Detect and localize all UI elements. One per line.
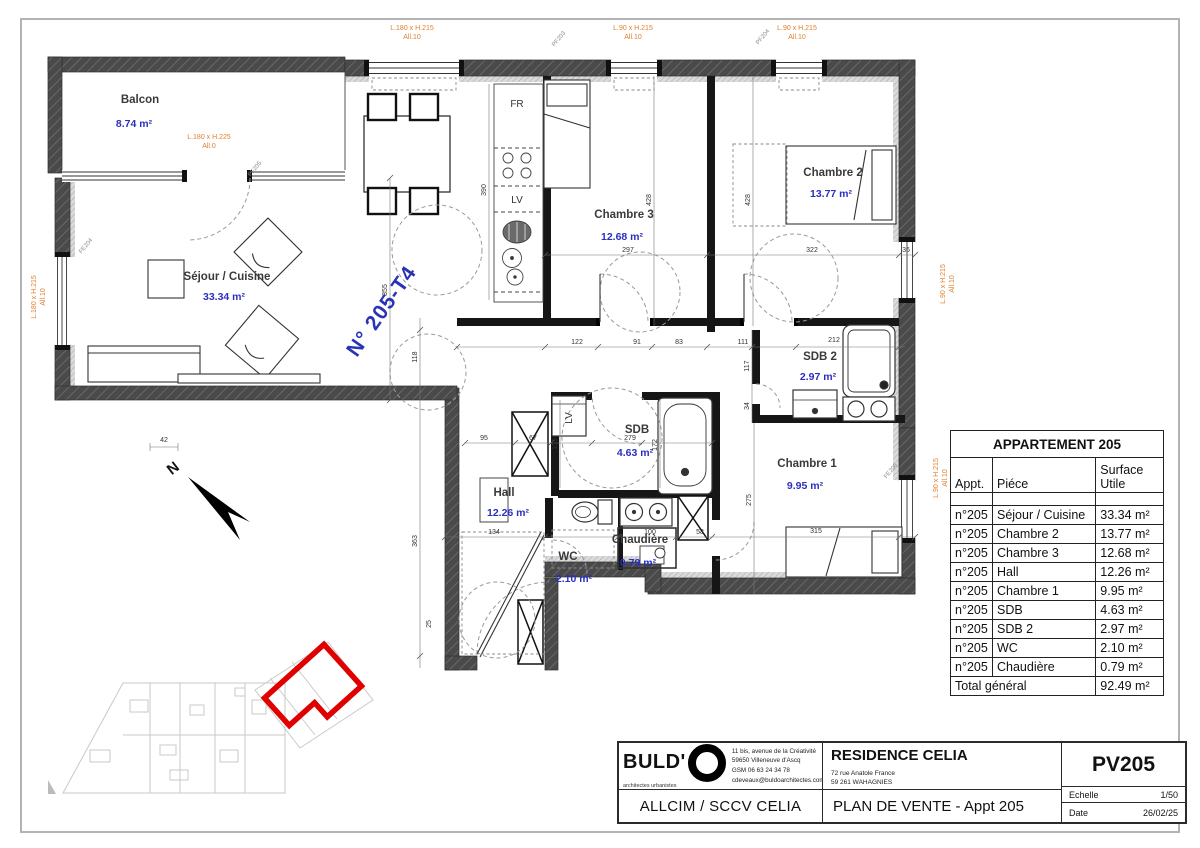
dim-text: 100 (644, 529, 656, 536)
dim-text: 58 (696, 529, 704, 536)
dining-table-icon (364, 116, 450, 192)
title-block: BULD' architectes urbanistes 11 bis, ave… (617, 741, 1187, 824)
dim-text: 159 (552, 438, 559, 450)
room-area-balcon: 8.74 m² (116, 118, 153, 130)
address-line: cdeveaux@buldoarchitectes.com (732, 776, 823, 786)
brand-subtitle: architectes urbanistes (623, 783, 726, 789)
cell-appt: n°205 (951, 601, 993, 620)
cell-appt: n°205 (951, 639, 993, 658)
cell-surface: 0.79 m² (1096, 658, 1164, 677)
room-area-chambre3: 12.68 m² (601, 231, 644, 243)
window-tag: PF204 (755, 28, 771, 46)
keyplan-marker (48, 780, 56, 794)
bed-icon (786, 527, 902, 577)
room-label-sejour: Séjour / Cuisine (184, 271, 271, 283)
room-label-chambre1: Chambre 1 (777, 458, 837, 470)
surface-table: APPARTEMENT 205 Appt. Piéce Surface Util… (950, 430, 1164, 696)
cell-appt: n°205 (951, 525, 993, 544)
window-size-label: L.90 x H.215 (613, 25, 653, 32)
room-label-chambre2: Chambre 2 (803, 167, 862, 179)
project-name: RESIDENCE CELIA (831, 747, 1053, 764)
room-area-hall: 12.26 m² (487, 507, 530, 519)
table-total-row: Total général 92.49 m² (951, 677, 1164, 696)
table-title: APPARTEMENT 205 (951, 431, 1164, 458)
bathtub-icon (658, 398, 712, 494)
table-row: n°205 Chambre 3 12.68 m² (951, 544, 1164, 563)
dim-text: 122 (571, 339, 583, 346)
laundry-label: LV (564, 412, 575, 424)
table-spacer-row (951, 493, 1164, 506)
dim-text: 36 (902, 247, 910, 254)
dim-text: 95 (480, 435, 488, 442)
dim-text: 117 (744, 360, 751, 371)
table-row: n°205 SDB 2 2.97 m² (951, 620, 1164, 639)
cell-piece: Chaudière (992, 658, 1095, 677)
dim-text: 322 (806, 247, 818, 254)
room-area-sdb2: 2.97 m² (800, 371, 837, 383)
room-label-chaudiere: Chaudière (612, 534, 668, 546)
cell-surface: 4.63 m² (1096, 601, 1164, 620)
project-address: 72 rue Anatole France 59 261 WAHAGNIES (831, 769, 1053, 787)
project-address-line: 72 rue Anatole France (831, 769, 1053, 778)
bed-icon (786, 146, 896, 224)
table-row: n°205 Chambre 2 13.77 m² (951, 525, 1164, 544)
coffee-table-icon (148, 260, 184, 298)
window-sill-label: All.10 (949, 275, 956, 293)
room-label-hall: Hall (493, 487, 514, 499)
dim-text: 297 (622, 247, 634, 254)
cell-appt: n°205 (951, 658, 993, 677)
wardrobe-dashed (733, 144, 787, 226)
dim-text: 34 (744, 402, 751, 410)
room-area-wc: 2.10 m² (556, 573, 593, 585)
brand-name: BULD' (623, 751, 686, 774)
col-header-piece: Piéce (992, 458, 1095, 493)
north-arrow: N (164, 458, 250, 540)
address-line: GSM 06 63 24 34 78 (732, 766, 823, 776)
table-row: n°205 Chaudière 0.79 m² (951, 658, 1164, 677)
window-sill-label: All.0 (202, 143, 216, 150)
scale-row: Echelle 1/50 (1062, 787, 1185, 803)
cell-surface: 12.68 m² (1096, 544, 1164, 563)
window-sill-label: All.10 (624, 34, 642, 41)
window-size-label: L.180 x H.225 (187, 134, 231, 141)
window-sill-label: All.10 (788, 34, 806, 41)
unit-number-label: N° 205-T4 (342, 262, 421, 361)
table-row: n°205 Séjour / Cuisine 33.34 m² (951, 506, 1164, 525)
bed-icon (544, 80, 590, 188)
kitchen-unit (494, 84, 543, 302)
window-sill-label: All.10 (40, 288, 47, 306)
cell-piece: SDB (992, 601, 1095, 620)
room-label-balcon: Balcon (121, 94, 159, 106)
dim-text: 111 (738, 339, 749, 346)
double-basin-icon (620, 498, 672, 526)
shower-icon (843, 325, 895, 397)
window-tag: PF203 (551, 30, 567, 48)
cell-appt: n°205 (951, 582, 993, 601)
cell-piece: Chambre 1 (992, 582, 1095, 601)
window-size-label: L.180 x H.215 (31, 275, 38, 319)
cell-surface: 12.26 m² (1096, 563, 1164, 582)
room-label-chambre3: Chambre 3 (594, 209, 653, 221)
window-tag: FE204 (78, 237, 94, 255)
dim-text: 428 (646, 194, 653, 206)
cell-appt: n°205 (951, 506, 993, 525)
room-area-sejour: 33.34 m² (203, 291, 246, 303)
project-block: RESIDENCE CELIA 72 rue Anatole France 59… (823, 743, 1062, 790)
plan-de-vente-sheet: { "plan": { "unit_label": "N° 205-T4", "… (0, 0, 1200, 848)
window-size-label: L.180 x H.215 (390, 25, 434, 32)
highlighted-unit-outline (265, 644, 362, 739)
room-label-sdb2: SDB 2 (803, 351, 837, 363)
address-line: 59650 Villeneuve d'Ascq (732, 756, 823, 766)
cell-surface: 9.95 m² (1096, 582, 1164, 601)
armchair-icon (225, 305, 298, 378)
drawing-reference: PV205 (1062, 743, 1185, 787)
cell-appt: n°205 (951, 544, 993, 563)
table-title-row: APPARTEMENT 205 (951, 431, 1164, 458)
project-address-line: 59 261 WAHAGNIES (831, 778, 1053, 787)
window-sill-label: All.10 (942, 469, 949, 487)
dim-text: 355 (382, 284, 389, 296)
cell-piece: Chambre 3 (992, 544, 1095, 563)
room-area-chambre2: 13.77 m² (810, 188, 853, 200)
table-row: n°205 Hall 12.26 m² (951, 563, 1164, 582)
dim-text: 390 (481, 184, 488, 196)
cell-piece: WC (992, 639, 1095, 658)
floor-plan-drawing: Balcon 8.74 m² Séjour / Cuisine 33.34 m²… (0, 0, 1200, 848)
fridge-label: FR (510, 99, 523, 110)
cell-appt: n°205 (951, 620, 993, 639)
col-header-appt: Appt. (951, 458, 993, 493)
cell-appt: n°205 (951, 563, 993, 582)
dim-text: 212 (828, 337, 840, 344)
cell-surface: 13.77 m² (1096, 525, 1164, 544)
scale-value: 1/50 (1160, 790, 1178, 800)
dishwasher-label: LV (511, 195, 523, 206)
brand-ring-icon (688, 744, 726, 782)
document-title: PLAN DE VENTE - Appt 205 (823, 790, 1062, 822)
room-area-sdb: 4.63 m² (617, 447, 654, 459)
date-value: 26/02/25 (1143, 808, 1178, 818)
window-size-label: L.90 x H.215 (777, 25, 817, 32)
date-row: Date 26/02/25 (1062, 803, 1185, 822)
room-area-chaudiere: 0.79 m² (620, 557, 657, 569)
cell-surface: 2.10 m² (1096, 639, 1164, 658)
dim-text: 279 (624, 435, 636, 442)
table-row: n°205 WC 2.10 m² (951, 639, 1164, 658)
dim-text: 25 (426, 620, 433, 628)
dim-text: 118 (412, 351, 419, 362)
window-size-label: L.90 x H.215 (933, 458, 940, 498)
total-label: Total général (951, 677, 1096, 696)
dim-text: 315 (810, 528, 822, 535)
window-sill-label: All.10 (403, 34, 421, 41)
key-plan (48, 642, 373, 794)
total-value: 92.49 m² (1096, 677, 1164, 696)
cell-surface: 2.97 m² (1096, 620, 1164, 639)
architect-block: BULD' architectes urbanistes 11 bis, ave… (619, 743, 823, 790)
windows (55, 60, 915, 543)
sideboard-icon (178, 374, 320, 383)
dim-text: 91 (633, 339, 641, 346)
address-line: 11 bis, avenue de la Créativité (732, 747, 823, 757)
cell-piece: Séjour / Cuisine (992, 506, 1095, 525)
cell-piece: SDB 2 (992, 620, 1095, 639)
architect-address: 11 bis, avenue de la Créativité 59650 Vi… (732, 747, 823, 786)
vanity-icon (843, 397, 895, 421)
dim-text: 363 (412, 535, 419, 547)
dim-text: 172 (652, 439, 659, 451)
reference-block: PV205 Echelle 1/50 Date 26/02/25 (1062, 743, 1185, 822)
cabinet-icon (793, 390, 837, 418)
toilet-icon (572, 500, 612, 524)
table-row: n°205 Chambre 1 9.95 m² (951, 582, 1164, 601)
room-label-wc: WC (558, 551, 577, 563)
cell-piece: Hall (992, 563, 1095, 582)
window-size-label: L.90 x H.215 (940, 264, 947, 304)
cell-piece: Chambre 2 (992, 525, 1095, 544)
col-header-surface: Surface Utile (1096, 458, 1164, 493)
scale-label: Echelle (1069, 790, 1099, 800)
table-header-row: Appt. Piéce Surface Utile (951, 458, 1164, 493)
cell-surface: 33.34 m² (1096, 506, 1164, 525)
date-label: Date (1069, 808, 1088, 818)
hob-burner-icon (503, 153, 513, 163)
dim-text: 134 (488, 529, 500, 536)
client-name: ALLCIM / SCCV CELIA (619, 790, 823, 822)
dim-text: 42 (160, 437, 168, 444)
dim-text: 67 (529, 435, 537, 442)
dim-text: 275 (746, 494, 753, 506)
table-row: n°205 SDB 4.63 m² (951, 601, 1164, 620)
dim-text: 83 (675, 339, 683, 346)
room-area-chambre1: 9.95 m² (787, 480, 824, 492)
north-label: N (164, 458, 183, 478)
dim-text: 428 (745, 194, 752, 206)
